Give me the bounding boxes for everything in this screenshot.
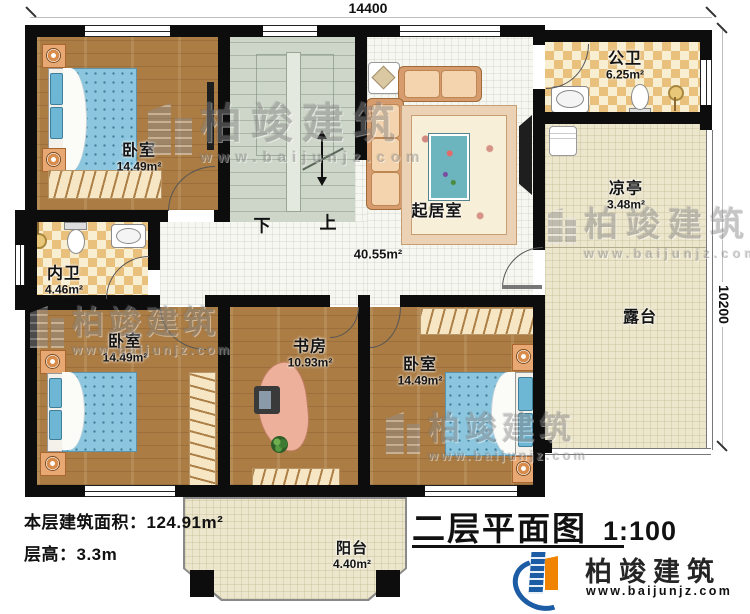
table-lamp [45,354,60,369]
water-heater [549,126,577,156]
stair-stringer [286,52,301,212]
table-lamp [516,349,531,364]
wall [25,25,37,497]
toilet-bowl [67,229,85,254]
page-title: 二层平面图1:100 [412,502,677,550]
bed-pillow [50,107,63,139]
room-label-living-room: 起居室 [411,203,462,221]
table-lamp [516,461,531,476]
window [15,245,25,285]
window [425,485,517,497]
dimension-tick [705,6,716,17]
bed-pillow [49,410,62,440]
wall [400,295,545,307]
balcony-pillar [190,570,214,597]
sofa-cushion [404,70,440,98]
bed-pillow [49,378,62,408]
wall [218,295,230,497]
wardrobe [189,372,216,490]
floor-plan-canvas: 14400 10200 [0,0,750,614]
stairs-down-label: 下 [254,212,271,237]
wall [148,222,160,270]
wall [355,25,367,160]
terrace-floor [545,248,706,450]
top-dimension-line [30,17,712,18]
room-label-inner-bathroom: 内卫 4.46m² [45,265,83,296]
stairs-up-label: 上 [320,209,337,234]
wall [533,30,545,45]
terrace-parapet [706,130,713,450]
table-lamp [46,152,61,167]
right-dimension-line [722,30,723,448]
wall [545,112,712,124]
sofa-cushion [371,172,400,206]
table-lamp [45,456,60,471]
bed-pillow [50,73,63,105]
window [263,25,317,37]
room-label-pavilion: 凉亭 3.48m² [607,180,645,211]
window [85,25,170,37]
room-label-public-bathroom: 公卫 6.25m² [606,50,644,81]
wall [533,295,545,497]
brand-url: www.baijunjz.com [586,584,732,598]
wardrobe [420,308,537,335]
terrace-parapet [545,448,711,455]
wall [214,210,230,222]
brand-logo-icon [510,550,574,602]
potted-plant [271,436,288,453]
stair-direction-arrow [317,130,327,139]
tv [519,115,532,195]
room-label-balcony: 阳台 4.40m² [333,541,371,571]
pavilion-terrace-divider [545,247,706,248]
brand-logo: 柏竣建筑 www.baijunjz.com [510,548,745,608]
floor-area-label: 本层建筑面积： [24,513,147,532]
bed-pillow [518,377,533,411]
tv [207,82,214,150]
dimension-tick [25,6,36,17]
shower-hose [674,97,676,111]
room-label-bedroom-bottom-right: 卧室 14.49m² [398,356,443,387]
wall [15,210,168,222]
sink-basin [116,228,141,244]
logo-building-orange [545,556,558,590]
right-dimension-label: 10200 [716,282,732,327]
floor-area-info: 本层建筑面积：124.91m² [24,508,223,533]
wardrobe [48,170,162,199]
coffee-table [429,134,469,200]
shower-head [668,85,684,101]
wall [218,25,230,222]
bed-pillow [518,413,533,447]
room-label-bedroom-bottom-left: 卧室 14.49m² [103,333,148,364]
logo-building-blue [529,552,546,594]
table-lamp [46,48,61,63]
sofa-cushion [371,138,400,172]
toilet-bowl [631,84,649,110]
room-label-study: 书房 10.93m² [288,338,333,369]
computer-screen [259,391,271,409]
balcony-pillar [376,570,400,597]
sink-basin [556,90,584,108]
sofa-cushion [371,104,400,138]
floor-height-value: 3.3m [77,545,118,564]
window [400,25,500,37]
room-label-terrace: 露台 [623,309,657,327]
floor-height-info: 层高：3.3m [24,540,117,565]
shower-hose [37,222,39,234]
door-leaf [502,285,542,289]
sofa-cushion [441,70,477,98]
wall [533,89,545,250]
floor-area-value: 124.91m² [147,513,224,532]
wall [358,295,370,497]
window [85,485,175,497]
window [700,60,712,105]
room-area-living-room: 40.55m² [354,248,402,263]
floor-height-label: 层高： [24,545,77,564]
wall [545,30,712,42]
plan-scale: 1:100 [603,516,677,546]
top-dimension-label: 14400 [339,0,397,16]
stair-direction-arrow [317,177,327,186]
room-label-bedroom-top-left: 卧室 14.49m² [117,142,162,173]
